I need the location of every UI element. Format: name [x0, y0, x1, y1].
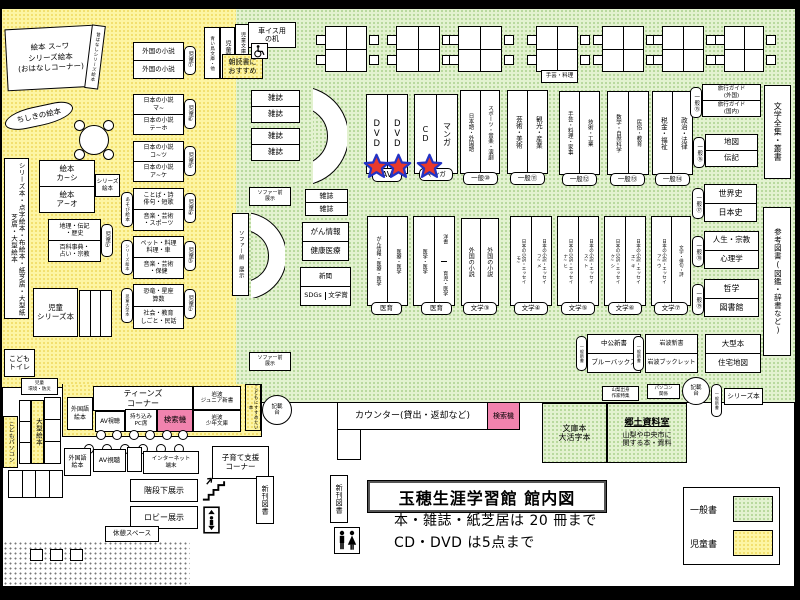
shelf-slats-b — [19, 400, 31, 464]
legend-general-swatch — [733, 496, 773, 522]
shelf-cell: 技術・工業 — [579, 92, 599, 174]
shelf-cell — [20, 401, 30, 421]
chair — [178, 430, 188, 440]
shelf-cell: 岩波新書 — [646, 335, 697, 353]
shelf-cell: SDGs — [301, 292, 325, 300]
teens-chair-row-a — [96, 430, 188, 439]
tag-ippan-shinsho-b: 一般新書 — [633, 336, 644, 371]
shelf-cell: 旅行ガイド (外国) — [703, 85, 760, 100]
shelf-cell — [45, 419, 60, 441]
chair — [653, 55, 663, 65]
shelf-cell: 税金・福祉 — [653, 92, 672, 174]
sofa-crescent-b — [251, 212, 285, 298]
shelf-cell: 旅行ガイド (国内) — [703, 100, 760, 116]
shelf-cell: 地図 — [706, 135, 757, 150]
chair — [316, 55, 326, 65]
shelf-cell: 観光・産業 — [527, 91, 547, 173]
shelf-literature-complete: 文学全集・叢書 — [764, 85, 791, 179]
shelf-cell: 文学・俳句・詩 — [671, 217, 691, 305]
tag-jido-7: 児童⑦ — [184, 46, 196, 75]
legend-row-children: 児童書 — [690, 530, 773, 556]
shelf-gen-14: 税金・福祉政治・法律 — [652, 91, 693, 175]
shelf-cell: 洋書 — [441, 217, 447, 261]
shelf-lit-4: 日本の小説・エッセイ モ~日本の小説・エッセイ フ~メ — [510, 216, 552, 306]
room-subtext: 山梨や中央市に 関する本・資料 — [623, 431, 672, 448]
tag-gen-11: 一般⑪ — [510, 172, 545, 185]
shelf-picture-books-main: 絵本 ス~ワ シリーズ絵本 (おはなしコーナー) — [4, 25, 96, 92]
shelf-jp-novels-ko: 日本の小説 コ~ツ日本の小説 ア~ケ — [133, 141, 184, 182]
shelf-foreign-ehon-b: 外国語 絵本 — [64, 448, 91, 476]
shelf-cell: 民俗・教育 — [628, 92, 649, 174]
shelf-lit-3: 外国の小説外国の小説 — [461, 218, 499, 306]
shelf-cell: 日本語・外国語 — [461, 91, 480, 173]
shelf-cell: ペット・料理 料理・車 — [134, 237, 183, 257]
shelf-shinkan-a: 新刊図書 — [256, 476, 274, 524]
rest-space-floor — [3, 541, 190, 585]
shelf-cell: 洋書育児・医学 — [434, 217, 455, 305]
shelf-cell: 図書館 — [705, 298, 758, 317]
label-shugei-ryori: 手芸・料理 — [541, 70, 578, 83]
shelf-ehon-ka-shi: 絵本 カ~シ絵本 ア~オ — [39, 160, 95, 213]
writing-desk-a: 記載 台 — [262, 395, 292, 425]
tag-gen-12: 一般⑫ — [562, 173, 597, 186]
shelf-cell: ことば・詩 俳句・短歌 — [134, 189, 183, 209]
sofa-crescent-a — [313, 86, 347, 184]
shelf-cell: 医療・医学 — [387, 217, 407, 305]
letterbox-bottom — [0, 587, 800, 600]
tag-gen-10: 一般⑩ — [463, 172, 498, 185]
chair — [74, 149, 85, 160]
chair — [74, 120, 85, 131]
tag-asobi-ehon: あそび絵本 — [121, 192, 133, 227]
shelf-cell — [9, 471, 22, 497]
sofa-front-display-top: ソファー前 展示 — [249, 187, 291, 206]
lobby-sofa — [8, 470, 63, 498]
shelf-reference: 参考図書(図鑑・辞書など) — [763, 207, 791, 356]
chair — [504, 35, 514, 45]
lending-note-books: 本・雑誌・紙芝居は 20 冊まで — [394, 510, 597, 530]
tag-iiku-a: 医育 — [371, 302, 402, 315]
shelf-cell: 大型本 — [706, 335, 760, 353]
stairs-icon — [200, 475, 227, 503]
chair — [504, 55, 514, 65]
shelf-cell: 伝記 — [706, 150, 757, 166]
rest-table — [50, 549, 63, 561]
av-booth-blank — [127, 447, 142, 472]
tag-gen-17: 一般⑰ — [692, 188, 704, 219]
page-title: 玉穂生涯学習館 館内図 — [368, 481, 606, 512]
tag-jido-4: 児童④ — [184, 193, 196, 223]
shelf-cell: 地理・伝記 ・歴史 — [49, 220, 100, 240]
chair — [580, 35, 590, 45]
shelf-cell — [100, 291, 111, 336]
shelf-philosophy: 哲学図書館 — [704, 279, 759, 317]
shelf-aoitori-strip: 青い鳥文庫・他 — [204, 27, 220, 79]
wheelchair-icon — [251, 43, 268, 59]
shelf-cell: 哲学 — [705, 280, 758, 298]
shelf-cell: 雑誌 — [252, 144, 299, 160]
shelf-jido-bosai: 児童 環境・防災 — [21, 378, 58, 395]
tag-gen-18: 一般⑱ — [692, 236, 704, 267]
chair — [112, 430, 122, 440]
shelf-world-history: 世界史日本史 — [704, 184, 757, 222]
sofa-front-display-left: ソファー前 展示 — [232, 213, 249, 296]
shelf-cell: 日本の小説・エッセイ ク~シ — [605, 217, 625, 305]
shelf-cell: 日本の小説・エッセイ モ~ — [511, 217, 531, 305]
tag-jido-ogata: 児童大型本 — [121, 288, 133, 323]
tag-gen-13: 一般⑬ — [610, 173, 645, 186]
shelf-cell: 日本の小説 ア~ケ — [134, 161, 183, 181]
chair — [653, 35, 663, 45]
shelf-medical-b: 医学・医学洋書育児・医学 — [413, 216, 455, 306]
shelf-series-ehon-tab: シリーズ 絵本 — [95, 174, 120, 197]
shelf-cell: がん情報・医療・医学 — [368, 217, 387, 305]
shelf-series-braille-strip: シリーズ本・点字絵本・布絵本・紙芝居・大型紙芝居・大型絵本 — [4, 158, 29, 319]
tag-lit-3: 文学③ — [463, 302, 497, 315]
shelf-pet-cooking: ペット・料理 料理・車音楽・芸術 ・保健 — [133, 236, 184, 279]
shelf-shinkan-b: 新刊図書 — [330, 475, 348, 523]
tag-gen-15: 一般⑮ — [690, 87, 702, 118]
shelf-cell: 絵本 カ~シ — [40, 161, 94, 186]
tag-gen-14: 一般⑭ — [655, 173, 690, 186]
shelf-cell — [45, 441, 60, 463]
counter-search-terminal: 検索機 — [487, 402, 520, 430]
tag-iiku-b: 医育 — [421, 302, 452, 315]
shelf-cell: 心理学 — [705, 250, 758, 269]
shelf-cell: 日本の小説・エッセイ ナ~ヒ — [558, 217, 578, 305]
rest-table — [70, 549, 83, 561]
shelf-cell: 日本の小説・エッセイ フ~メ — [531, 217, 552, 305]
shelf-cell: 恐竜・星座 算数 — [134, 285, 183, 306]
tag-lit-7: 文学⑦ — [654, 302, 688, 315]
shelf-slats-a — [79, 290, 112, 337]
reading-table — [396, 26, 440, 72]
av-seat-b: AV視聴 — [93, 449, 126, 472]
shelf-cell: 日本の小説・エッセイ ア~ウ — [652, 217, 671, 305]
shelf-cell: 日本の小説 マ~ — [134, 95, 183, 114]
tag-gen-19: 一般⑲ — [692, 284, 704, 315]
chair — [369, 55, 379, 65]
shelf-foreign-novels-child: 外国の小説外国の小説 — [133, 42, 184, 79]
shelf-cell: 世界史 — [705, 185, 756, 203]
shelf-cell: 百科事典・ 占い・宗教 — [49, 240, 100, 261]
letterbox-top — [0, 0, 800, 9]
shelf-cell: 音楽・芸術 ・保健 — [134, 257, 183, 278]
label-pc-related: パソコン 関係 — [647, 384, 680, 399]
reading-table — [458, 26, 502, 72]
rest-table — [30, 549, 43, 561]
internet-terminal: インターネット 端末 — [143, 451, 199, 474]
shelf-cell: 数学・自然科学 — [608, 92, 628, 174]
tag-jido-2: 児童② — [184, 289, 196, 319]
shelf-cell: 健康医療 — [303, 241, 348, 260]
tag-jido-3: 児童③ — [184, 241, 196, 271]
shelf-kodomo-recommend: こどもにすすめたい本 — [245, 384, 261, 431]
chair — [715, 55, 725, 65]
shelf-cell: 医学・医学 — [414, 217, 434, 305]
counter-return-wing — [337, 429, 361, 460]
legend: 一般書 児童書 — [683, 487, 780, 565]
shelf-cell — [90, 291, 101, 336]
chair — [715, 35, 725, 45]
shelf-cell — [22, 471, 36, 497]
tag-lit-6: 文学⑥ — [608, 302, 642, 315]
shelf-cell: 政治・法律 — [672, 92, 692, 174]
chair — [766, 55, 776, 65]
rest-space-label: 休憩スペース — [105, 526, 159, 542]
shelf-life-religion: 人生・宗教心理学 — [704, 231, 759, 269]
shelf-lit-6: 日本の小説・エッセイ ク~シ日本の小説・エッセイ エ~キ — [604, 216, 646, 306]
shelf-cell: 雑誌 — [252, 129, 299, 144]
shelf-dinosaur: 恐竜・星座 算数社会・教育 しごと・民話 — [133, 284, 184, 329]
library-floor-map: 絵本 ス~ワ シリーズ絵本 (おはなしコーナー)昔ばなしシリーズ絵本ちしきの絵本… — [0, 0, 800, 600]
shelf-lit-5: 日本の小説・エッセイ ナ~ヒ日本の小説・エッセイ ス~ト — [557, 216, 599, 306]
reading-table — [325, 26, 367, 72]
kyodo-shiryoshitsu: 郷土資料室山梨や中央市に 関する本・資料 — [607, 403, 687, 463]
tag-ippan-shinsho-a: 一般新書 — [576, 336, 587, 371]
teens-corner-header: ティーンズ コーナー — [93, 386, 193, 411]
shelf-cell: 新聞 — [301, 268, 350, 286]
elevator-icon — [203, 506, 220, 534]
chair — [527, 55, 537, 65]
shelf-magazines-a: 雑誌雑誌 — [251, 90, 300, 123]
shelf-slats-c — [44, 397, 61, 464]
shelf-newspaper: 新聞SDGs文学賞 — [300, 267, 351, 306]
location-star — [385, 153, 412, 180]
tag-jido-1: 児童① — [101, 224, 113, 257]
under-stairs-display: 階段下展示 — [130, 479, 198, 502]
shelf-iwanami-shinsho: 岩波新書岩波ブックレット — [645, 334, 698, 373]
shelf-cell: 日本史 — [705, 203, 756, 222]
shelf-cell: 文学賞 — [325, 292, 350, 300]
chair — [162, 430, 172, 440]
shelf-bunko-daikatsuji: 文庫本 大活字本 — [542, 403, 607, 463]
tag-lit-5: 文学⑤ — [561, 302, 595, 315]
shelf-cell: 社会・教育 しごと・民話 — [134, 306, 183, 328]
shelf-iwanami-shonen: 岩波 少年文庫 — [193, 410, 241, 432]
shelf-ogata-ehon-strip: 大型絵本 — [31, 400, 44, 464]
chair — [103, 120, 114, 131]
shelf-cell: 日本の小説・エッセイ エ~キ — [625, 217, 646, 305]
tag-jido-5: 児童⑤ — [184, 146, 196, 176]
shelf-kotoba: ことば・詩 俳句・短歌音楽・芸術 ・スポーツ — [133, 188, 184, 231]
letterbox-left — [0, 0, 2, 600]
shelf-gen-12: 手芸・料理・家事技術・工業 — [559, 91, 600, 175]
teens-av-seat: AV視聴 — [95, 411, 125, 432]
shelf-magazines-b: 雑誌雑誌 — [251, 128, 300, 161]
shelf-cell: SDGs文学賞 — [301, 286, 350, 305]
shelf-cell: 日本の小説 コ~ツ — [134, 142, 183, 161]
chair — [593, 35, 603, 45]
legend-row-general: 一般書 — [690, 496, 773, 522]
kodomo-pc-strip: こどもパソコン — [3, 416, 18, 468]
shelf-cell: 日本の小説・エッセイ ス~ト — [578, 217, 599, 305]
shelf-cell: 育児・医学 — [441, 261, 447, 306]
shelf-cell: 芸術・美術 — [508, 91, 527, 173]
chair — [369, 35, 379, 45]
kodomo-toilet: こども トイレ — [4, 349, 35, 377]
shelf-map-biography: 地図伝記 — [705, 134, 758, 167]
tag-ippan-shinsho-c: 一般新書 — [711, 384, 722, 417]
tag-lit-4: 文学④ — [514, 302, 548, 315]
shelf-series-general: シリーズ本 — [724, 388, 763, 405]
shelf-cell — [20, 421, 30, 442]
chair — [766, 35, 776, 45]
location-star — [416, 153, 443, 180]
chair — [145, 430, 155, 440]
sofa-front-display-bottom: ソファー前 展示 — [249, 352, 291, 371]
shelf-cell — [45, 398, 60, 419]
shelf-gen-13: 数学・自然科学民俗・教育 — [607, 91, 649, 175]
writing-desk-b: 記載 台 — [682, 377, 710, 405]
shelf-jp-novels-ma: 日本の小説 マ~日本の小説 テーホ — [133, 94, 184, 135]
chair — [580, 55, 590, 65]
shelf-cell: 住宅地図 — [706, 353, 760, 372]
shelf-cell: がん情報 — [303, 223, 348, 241]
legend-children-label: 児童書 — [690, 537, 717, 550]
chair — [387, 35, 397, 45]
chair — [316, 35, 326, 45]
reading-round-table — [74, 120, 112, 158]
shelf-cell: 雑誌 — [306, 190, 347, 202]
shelf-ogata-jutaku: 大型本住宅地図 — [705, 334, 761, 373]
shelf-gen-11: 芸術・美術観光・産業 — [507, 90, 548, 174]
shelf-geography-child: 地理・伝記 ・歴史百科事典・ 占い・宗教 — [48, 219, 101, 262]
legend-general-label: 一般書 — [690, 503, 717, 516]
shelf-jido-series: 児童 シリーズ本 — [33, 288, 78, 337]
room-title: 郷土資料室 — [623, 418, 672, 429]
label-yamanashi-authors: 山梨出身 作家特集 — [602, 386, 639, 401]
toilet-icon — [334, 527, 360, 554]
letterbox-right — [795, 0, 800, 600]
shelf-cell: 外国の小説 — [480, 219, 499, 305]
shelf-lit-7: 日本の小説・エッセイ ア~ウ文学・俳句・詩 — [651, 216, 691, 306]
shelf-cell: 雑誌 — [306, 202, 347, 215]
page-title-text: 玉穂生涯学習館 館内図 — [399, 485, 576, 509]
shelf-cell: 外国の小説 — [134, 43, 183, 60]
shelf-cell: 音楽・芸術 ・スポーツ — [134, 209, 183, 230]
shelf-cell: 雑誌 — [252, 91, 299, 106]
shelf-foreign-ehon-a: 外国語 絵本 — [67, 397, 93, 430]
reading-table — [724, 26, 764, 72]
tag-gen-16: 一般⑯ — [693, 137, 705, 168]
shelf-travel-guide: 旅行ガイド (外国)旅行ガイド (国内) — [702, 84, 761, 117]
shelf-gen-10: 日本語・外国語スポーツ・音楽・演劇 — [460, 90, 500, 174]
shelf-cell: 日本の小説 テーホ — [134, 114, 183, 134]
chair — [449, 55, 459, 65]
shelf-iwanami-junior: 岩波 ジュニア新書 — [193, 386, 241, 410]
legend-children-swatch — [733, 530, 773, 556]
shelf-magazines-c: 雑誌雑誌 — [305, 189, 348, 216]
reading-table — [602, 26, 644, 72]
chair — [103, 149, 114, 160]
shelf-cancer-info: がん情報健康医療 — [302, 222, 349, 261]
chair — [96, 430, 106, 440]
shelf-cell: 外国の小説 — [134, 60, 183, 78]
chair — [387, 55, 397, 65]
shelf-cell: スポーツ・音楽・演劇 — [480, 91, 500, 173]
shelf-medical-a: がん情報・医療・医学医療・医学 — [367, 216, 408, 306]
teens-byod-pc-seat: 持ち込み PC席 — [125, 409, 157, 432]
tag-series-ehon: シリーズ絵本 — [121, 240, 133, 275]
shelf-cell: 雑誌 — [252, 106, 299, 122]
teens-search-terminal: 検索機 — [157, 409, 193, 432]
chair — [527, 35, 537, 45]
shelf-cell: 人生・宗教 — [705, 232, 758, 250]
shelf-cell: 手芸・料理・家事 — [560, 92, 579, 174]
chair — [593, 55, 603, 65]
shelf-cell — [80, 291, 90, 336]
shelf-cell — [49, 471, 63, 497]
reading-table — [662, 26, 704, 72]
chair — [129, 430, 139, 440]
tag-jido-6: 児童⑥ — [184, 99, 196, 129]
shelf-cell — [20, 442, 30, 463]
shelf-cell: 絵本 ア~オ — [40, 186, 94, 212]
lending-note-av: CD・DVD は5点まで — [394, 532, 535, 552]
shelf-cell: 外国の小説 — [462, 219, 480, 305]
reading-table — [536, 26, 578, 72]
shelf-cell — [35, 471, 49, 497]
chair — [449, 35, 459, 45]
shelf-cell: 岩波ブックレット — [646, 353, 697, 372]
